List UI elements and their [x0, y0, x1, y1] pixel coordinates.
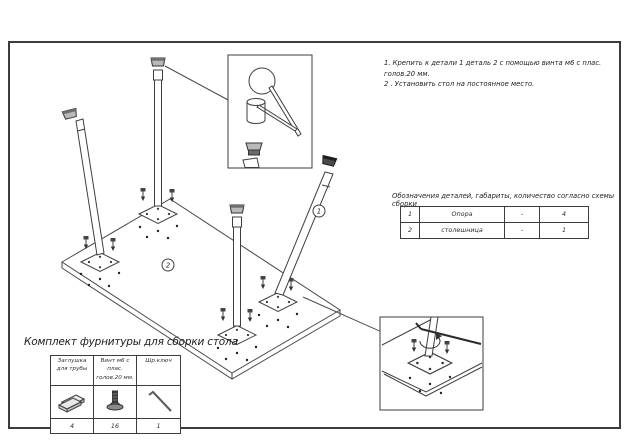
note-line-1: 1. Крепить к детали 1 деталь 2 с помощью…: [384, 58, 626, 79]
tabletop: [62, 199, 340, 379]
hex-key-icon: [137, 386, 180, 419]
leg-left: [62, 108, 104, 255]
leader-line-top-detail: [165, 66, 230, 101]
part-qty: 4: [540, 207, 588, 223]
detail-view-cap: [228, 55, 312, 168]
pipe-plug-icon: [51, 386, 94, 419]
part-name: столешница: [420, 223, 505, 238]
hardware-kit-table: Заглушка для трубы Винт м6 с плас. голов…: [50, 355, 181, 434]
hardware-kit-title: Комплект фурнитуры для сборки стола: [24, 336, 238, 348]
leg-right: [275, 156, 337, 295]
callout-tabletop: 2: [162, 259, 174, 271]
hardware-label: Винт м6 с плас. голов.20 мм.: [94, 356, 137, 386]
hardware-label: Заглушка для трубы: [51, 356, 94, 386]
part-name: Опора: [420, 207, 505, 223]
screw-icon: [94, 386, 137, 419]
assembly-notes: 1. Крепить к детали 1 деталь 2 с помощью…: [384, 58, 626, 90]
parts-list-table: 1 Опора - 4 2 столешница - 1: [400, 206, 589, 239]
svg-text:1: 1: [317, 208, 321, 216]
note-line-2: 2 . Установить стол на постоянное место.: [384, 79, 626, 90]
callout-support: 1: [313, 205, 325, 217]
hardware-label: Шр.ключ: [137, 356, 180, 386]
part-qty: 1: [540, 223, 588, 238]
part-number: 2: [401, 223, 420, 238]
svg-text:2: 2: [166, 262, 171, 270]
detail-view-plate: [380, 317, 483, 410]
hardware-qty: 1: [137, 419, 180, 433]
hardware-qty: 16: [94, 419, 137, 433]
part-dim: -: [505, 207, 540, 223]
assembly-instruction-sheet: 1 2: [0, 0, 630, 445]
part-dim: -: [505, 223, 540, 238]
leg-back-left: [151, 58, 165, 206]
part-number: 1: [401, 207, 420, 223]
hardware-qty: 4: [51, 419, 94, 433]
